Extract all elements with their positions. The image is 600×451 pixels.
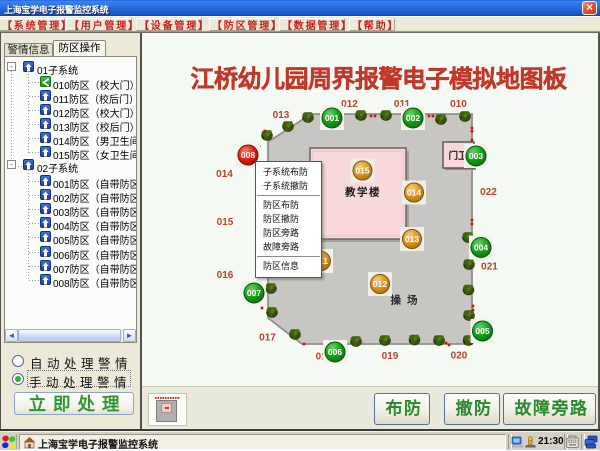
svg-text:016: 016 xyxy=(217,270,234,281)
svg-text:015: 015 xyxy=(355,166,369,176)
svg-text:008: 008 xyxy=(241,150,255,160)
svg-text:004: 004 xyxy=(474,243,488,253)
svg-text:021: 021 xyxy=(481,262,498,273)
svg-text:003: 003 xyxy=(469,151,483,161)
svg-text:013: 013 xyxy=(405,234,419,244)
svg-text:014: 014 xyxy=(407,188,421,198)
svg-text:022: 022 xyxy=(480,187,497,198)
svg-text:014: 014 xyxy=(216,169,233,180)
svg-text:020: 020 xyxy=(451,351,468,362)
svg-text:019: 019 xyxy=(382,351,399,362)
svg-text:012: 012 xyxy=(373,279,387,289)
svg-text:007: 007 xyxy=(247,288,261,298)
svg-text:017: 017 xyxy=(259,333,276,344)
svg-text:001: 001 xyxy=(325,113,339,123)
svg-text:015: 015 xyxy=(217,217,234,228)
svg-text:010: 010 xyxy=(450,99,467,110)
svg-text:操场: 操场 xyxy=(391,294,424,307)
svg-text:002: 002 xyxy=(406,113,420,123)
svg-text:教学楼: 教学楼 xyxy=(344,186,381,199)
svg-text:005: 005 xyxy=(475,326,489,336)
svg-text:006: 006 xyxy=(328,347,342,357)
svg-text:013: 013 xyxy=(273,110,290,121)
